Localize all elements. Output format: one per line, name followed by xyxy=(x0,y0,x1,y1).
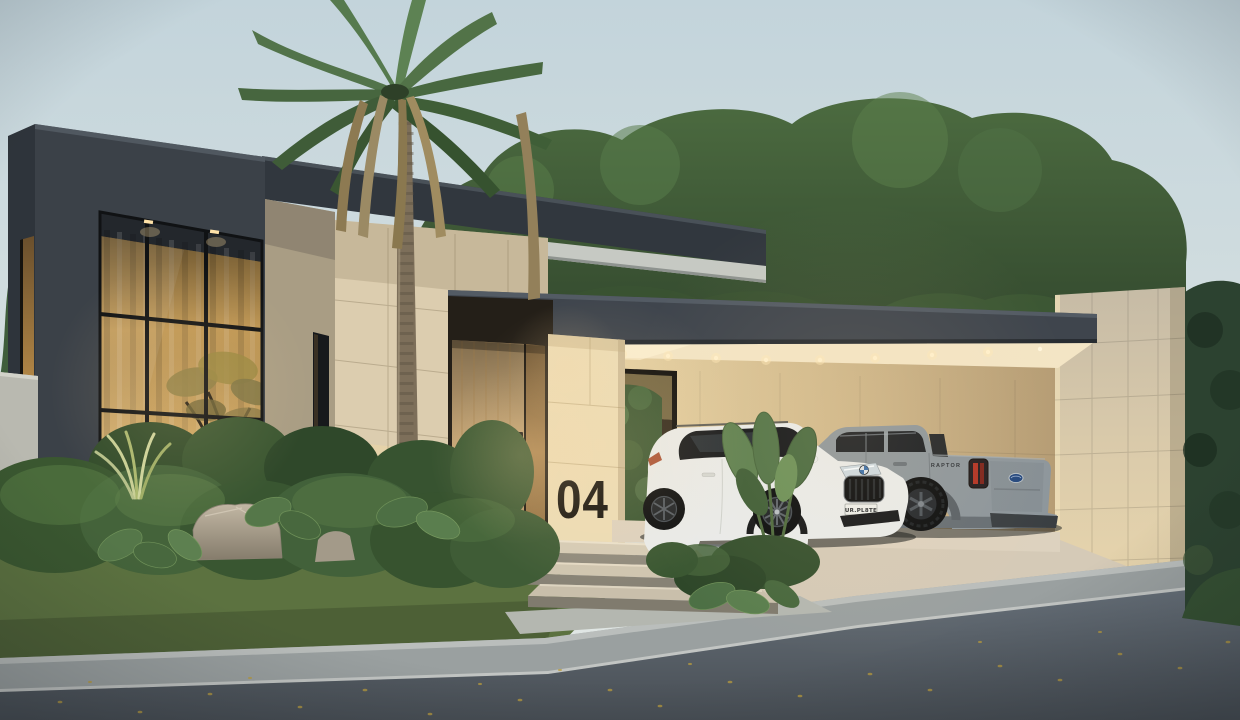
architectural-render: 04 xyxy=(0,0,1240,720)
vignette xyxy=(0,0,1240,720)
